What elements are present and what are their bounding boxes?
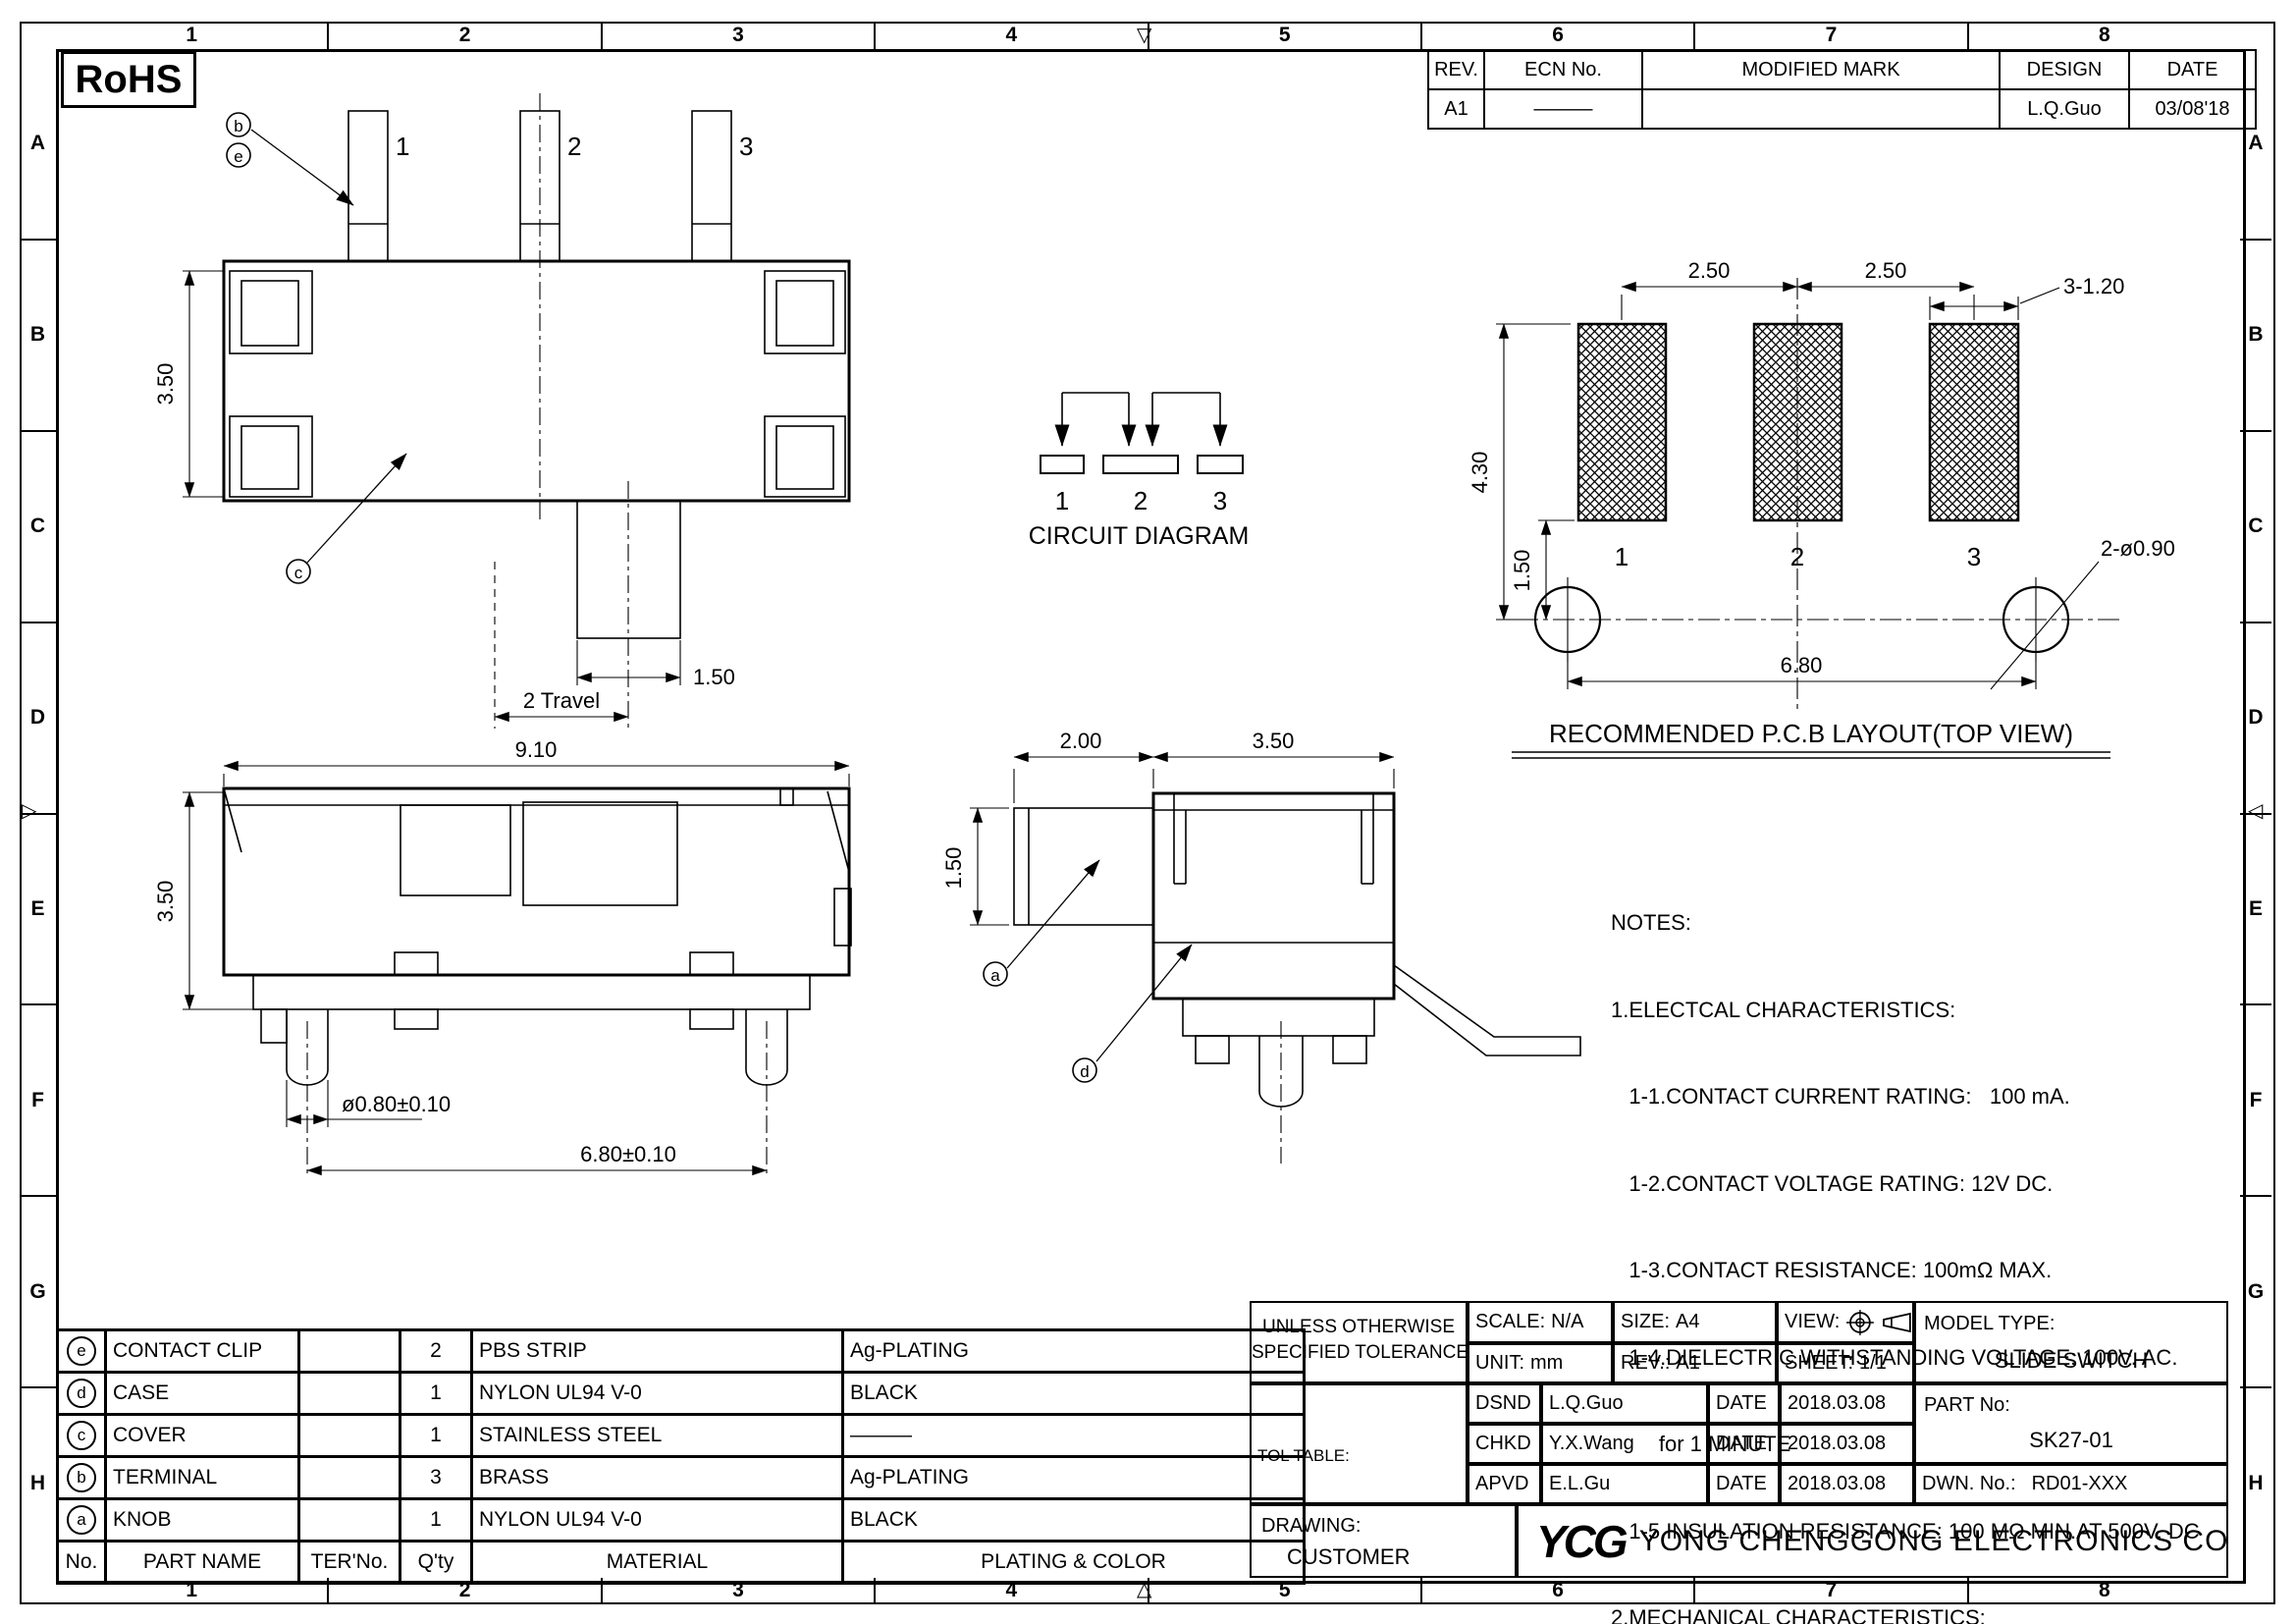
dsnd-role-label: DSND — [1469, 1392, 1537, 1415]
chkd-role: CHKD — [1468, 1424, 1541, 1464]
circuit-pad-2-label: 2 — [1134, 486, 1148, 515]
part-material: NYLON UL94 V-0 — [472, 1373, 843, 1415]
chkd-date-label: DATE — [1708, 1424, 1780, 1464]
parts-row: a KNOB 1 NYLON UL94 V-0 BLACK — [58, 1499, 1305, 1542]
dwn-no-value: RD01-XXX — [2032, 1473, 2128, 1495]
part-material: NYLON UL94 V-0 — [472, 1499, 843, 1542]
circuit-pad-1-label: 1 — [1055, 486, 1069, 515]
parts-row: c COVER 1 STAINLESS STEEL ——— — [58, 1415, 1305, 1457]
dim-side-knob-width: 2.00 — [1014, 729, 1153, 803]
cover-window-left — [400, 805, 510, 895]
tolerance-heading: UNLESS OTHERWISE SPECIFIED TOLERANCES — [1250, 1301, 1468, 1383]
parts-header-qty: Q'ty — [400, 1542, 472, 1584]
part-ter-no — [299, 1415, 400, 1457]
chkd-name: Y.X.Wang — [1541, 1424, 1708, 1464]
notes-title: NOTES: — [1611, 908, 2200, 938]
chkd-date-value: 2018.03.08 — [1782, 1433, 1892, 1455]
size-cell: SIZE: A4 — [1613, 1301, 1777, 1343]
dim-body-width-text: 9.10 — [515, 737, 558, 762]
part-ter-no — [299, 1499, 400, 1542]
projection-symbol-cone-icon — [1881, 1313, 1912, 1332]
part-material: PBS STRIP — [472, 1330, 843, 1373]
knob-profile — [1014, 808, 1153, 925]
dim-pcb-pitch-b-text: 2.50 — [1865, 258, 1907, 283]
part-ter-no — [299, 1330, 400, 1373]
pcb-layout-caption: RECOMMENDED P.C.B LAYOUT(TOP VIEW) — [1549, 719, 2073, 748]
part-no-value: SK27-01 — [1924, 1423, 2218, 1458]
switch-body-outline — [224, 261, 849, 501]
parts-header-part: PART NAME — [106, 1542, 299, 1584]
pcb-pad-3 — [1930, 324, 2018, 520]
model-type-cell: MODEL TYPE: SLIDE SWITCH — [1914, 1301, 2228, 1383]
tolerance-table: TOL TABLE: X. : ±0.38 X.° :±3° X.X : ±0.… — [1250, 1383, 1468, 1504]
dim-pcb-hole-diameter: 2-ø0.90 — [1991, 536, 2175, 689]
part-material: STAINLESS STEEL — [472, 1415, 843, 1457]
dim-pcb-hole-offset-text: 1.50 — [1510, 550, 1534, 592]
circuit-diagram: 1 2 3 CIRCUIT DIAGRAM — [1029, 393, 1250, 550]
size-label: SIZE: — [1615, 1311, 1676, 1333]
part-qty: 1 — [400, 1499, 472, 1542]
part-material: BRASS — [472, 1457, 843, 1499]
parts-row: d CASE 1 NYLON UL94 V-0 BLACK — [58, 1373, 1305, 1415]
part-plating: BLACK — [843, 1499, 1305, 1542]
dim-knob-width-text: 1.50 — [693, 665, 735, 689]
part-name: COVER — [106, 1415, 299, 1457]
dim-knob-width: 1.50 — [577, 640, 735, 689]
dim-front-height: 3.50 — [153, 792, 253, 1009]
apvd-date: 2018.03.08 — [1780, 1464, 1914, 1504]
dim-pcb-hole-offset: 1.50 — [1510, 520, 1575, 620]
terminal-1 — [348, 111, 388, 261]
dim-pcb-hole-span-text: 6.80 — [1781, 653, 1823, 677]
balloon-b-label: b — [234, 117, 242, 135]
part-balloon: b — [58, 1457, 106, 1499]
part-balloon-letter: b — [67, 1463, 96, 1492]
balloon-c: c — [287, 560, 310, 583]
part-qty: 1 — [400, 1415, 472, 1457]
note-line: 1-2.CONTACT VOLTAGE RATING: 12V DC. — [1611, 1169, 2200, 1199]
circuit-pad-3-label: 3 — [1213, 486, 1227, 515]
dim-pin-diameter: ø0.80±0.10 — [287, 1080, 451, 1127]
pcb-pad-1 — [1578, 324, 1666, 520]
part-plating: ——— — [843, 1415, 1305, 1457]
contact-clip-details — [230, 271, 845, 497]
parts-table: e CONTACT CLIP 2 PBS STRIP Ag-PLATING d … — [56, 1328, 1306, 1585]
circuit-pad-1 — [1041, 456, 1084, 473]
sheet-label: SHEET: — [1779, 1352, 1859, 1375]
dim-body-width: 9.10 — [224, 737, 849, 786]
dim-pin-span-text: 6.80±0.10 — [580, 1142, 676, 1166]
terminal-1-label: 1 — [396, 132, 409, 161]
chkd-role-label: CHKD — [1469, 1433, 1537, 1455]
terminal-2-label: 2 — [567, 132, 581, 161]
balloon-e-label: e — [234, 147, 242, 166]
dim-pin-span: 6.80±0.10 — [307, 1142, 767, 1170]
dim-pcb-pad-height-text: 4.30 — [1468, 452, 1492, 494]
part-balloon: c — [58, 1415, 106, 1457]
side-body-outline — [1153, 793, 1394, 999]
balloon-a-label: a — [990, 966, 1000, 985]
rev-value: A1 — [1676, 1352, 1699, 1375]
model-type-value: SLIDE SWITCH — [1924, 1342, 2218, 1380]
note-line: 1-3.CONTACT RESISTANCE: 100mΩ MAX. — [1611, 1256, 2200, 1285]
dim-top-height-text: 3.50 — [153, 363, 178, 406]
terminal-3 — [692, 111, 731, 261]
apvd-name: E.L.Gu — [1541, 1464, 1708, 1504]
scale-value: N/A — [1551, 1311, 1583, 1333]
parts-header-row: No. PART NAME TER'No. Q'ty MATERIAL PLAT… — [58, 1542, 1305, 1584]
dsnd-date: 2018.03.08 — [1780, 1383, 1914, 1424]
parts-header-no: No. — [58, 1542, 106, 1584]
drawing-label: DRAWING: — [1261, 1510, 1505, 1542]
unit-value: mm — [1530, 1352, 1563, 1375]
side-base — [1183, 999, 1374, 1036]
sheet-cell: SHEET: 1/1 — [1777, 1343, 1914, 1383]
dim-side-body-width-text: 3.50 — [1253, 729, 1295, 753]
part-plating: Ag-PLATING — [843, 1330, 1305, 1373]
company-logo: YCG — [1536, 1515, 1626, 1568]
circuit-pad-2 — [1103, 456, 1178, 473]
part-plating: Ag-PLATING — [843, 1457, 1305, 1499]
part-name: TERMINAL — [106, 1457, 299, 1499]
side-view: 2.00 3.50 1.50 a d — [941, 729, 1580, 1164]
bent-terminal-lead — [1394, 965, 1580, 1056]
dim-pin-diameter-text: ø0.80±0.10 — [342, 1092, 451, 1116]
scale-cell: SCALE: N/A — [1468, 1301, 1613, 1343]
chkd-date-label-text: DATE — [1710, 1433, 1773, 1455]
dim-side-body-width: 3.50 — [1153, 729, 1394, 788]
circuit-pad-3 — [1198, 456, 1243, 473]
balloon-b: b — [227, 113, 250, 136]
part-plating: BLACK — [843, 1373, 1305, 1415]
unit-label: UNIT: — [1469, 1352, 1530, 1375]
rev-label: REV.: — [1615, 1352, 1676, 1375]
balloon-c-label: c — [294, 564, 303, 582]
drawing-customer-cell: DRAWING: CUSTOMER — [1250, 1504, 1517, 1578]
company-cell: YCG YONG CHENGGONG ELECTRONICS CO.,LTD. — [1517, 1504, 2228, 1578]
tolerance-heading-line2: SPECIFIED TOLERANCES — [1252, 1340, 1466, 1366]
apvd-name-value: E.L.Gu — [1543, 1473, 1616, 1495]
circuit-diagram-caption: CIRCUIT DIAGRAM — [1029, 522, 1250, 550]
part-balloon-letter: d — [67, 1379, 96, 1408]
front-view: 9.10 3.50 — [153, 737, 851, 1176]
part-name: CONTACT CLIP — [106, 1330, 299, 1373]
tolerance-table-title: TOL TABLE: — [1257, 1442, 1460, 1469]
title-block: UNLESS OTHERWISE SPECIFIED TOLERANCES SC… — [1250, 1301, 2228, 1578]
unit-cell: UNIT: mm — [1468, 1343, 1613, 1383]
dim-side-knob-height: 1.50 — [941, 808, 1009, 925]
dim-top-height: 3.50 — [153, 271, 224, 497]
apvd-role: APVD — [1468, 1464, 1541, 1504]
pcb-pad-3-label: 3 — [1967, 542, 1981, 571]
company-name: YONG CHENGGONG ELECTRONICS CO.,LTD. — [1639, 1525, 2228, 1558]
part-name: KNOB — [106, 1499, 299, 1542]
parts-row: e CONTACT CLIP 2 PBS STRIP Ag-PLATING — [58, 1330, 1305, 1373]
part-balloon-letter: e — [67, 1336, 96, 1366]
dsnd-name-value: L.Q.Guo — [1543, 1392, 1629, 1415]
part-balloon-letter: c — [67, 1421, 96, 1450]
apvd-role-label: APVD — [1469, 1473, 1534, 1495]
part-balloon: e — [58, 1330, 106, 1373]
tolerance-heading-line1: UNLESS OTHERWISE — [1252, 1315, 1466, 1340]
part-ter-no — [299, 1373, 400, 1415]
rev-cell: REV.: A1 — [1613, 1343, 1777, 1383]
dim-travel: 2 Travel — [495, 562, 628, 729]
part-qty: 1 — [400, 1373, 472, 1415]
drawing-value: CUSTOMER — [1261, 1542, 1505, 1573]
dwn-no-cell: DWN. No.: RD01-XXX — [1914, 1464, 2228, 1504]
note-line: 1-1.CONTACT CURRENT RATING: 100 mA. — [1611, 1082, 2200, 1111]
front-body-outline — [224, 788, 849, 975]
dsnd-name: L.Q.Guo — [1541, 1383, 1708, 1424]
model-type-label: MODEL TYPE: — [1924, 1305, 2218, 1342]
projection-symbol-target-icon — [1845, 1310, 1875, 1335]
view-cell: VIEW: — [1777, 1301, 1914, 1343]
part-ter-no — [299, 1457, 400, 1499]
dsnd-role: DSND — [1468, 1383, 1541, 1424]
parts-row: b TERMINAL 3 BRASS Ag-PLATING — [58, 1457, 1305, 1499]
sheet-value: 1/1 — [1859, 1352, 1887, 1375]
part-qty: 3 — [400, 1457, 472, 1499]
parts-header-material: MATERIAL — [472, 1542, 843, 1584]
dim-pcb-pitch-a-text: 2.50 — [1688, 258, 1731, 283]
dsnd-date-value: 2018.03.08 — [1782, 1392, 1892, 1415]
part-balloon: d — [58, 1373, 106, 1415]
part-no-cell: PART No: SK27-01 — [1914, 1383, 2228, 1464]
dim-pcb-hole-span: 6.80 — [1568, 653, 2036, 689]
dwn-no-label: DWN. No.: — [1916, 1473, 2022, 1495]
parts-header-plating: PLATING & COLOR — [843, 1542, 1305, 1584]
dim-side-knob-width-text: 2.00 — [1060, 729, 1102, 753]
chkd-date: 2018.03.08 — [1780, 1424, 1914, 1464]
dsnd-date-label: DATE — [1708, 1383, 1780, 1424]
balloon-e: e — [227, 143, 250, 167]
pcb-pad-1-label: 1 — [1615, 542, 1629, 571]
dsnd-date-label-text: DATE — [1710, 1392, 1773, 1415]
dim-travel-text: 2 Travel — [523, 688, 600, 713]
chkd-name-value: Y.X.Wang — [1543, 1433, 1640, 1455]
pcb-layout: 1 2 3 2.50 2.50 — [1468, 258, 2175, 758]
base-strip — [253, 975, 810, 1009]
dim-pcb-pad-width-text: 3-1.20 — [2063, 274, 2124, 298]
note-line: 1.ELECTCAL CHARACTERISTICS: — [1611, 996, 2200, 1025]
part-balloon-letter: a — [67, 1505, 96, 1535]
note-line: 2.MECHANICAL CHARACTERISTICS: — [1611, 1603, 2200, 1624]
top-view: 1 2 3 b e c 3.50 — [153, 93, 849, 731]
cover-window-right — [523, 802, 677, 905]
drawing-sheet: 1 2 3 4 5 6 7 8 1 2 3 4 5 6 7 8 A B C D … — [0, 0, 2296, 1624]
apvd-date-value: 2018.03.08 — [1782, 1473, 1892, 1495]
part-name: CASE — [106, 1373, 299, 1415]
scale-label: SCALE: — [1469, 1311, 1551, 1333]
terminal-3-label: 3 — [739, 132, 753, 161]
balloon-a: a — [984, 962, 1007, 986]
part-no-label: PART No: — [1924, 1387, 2218, 1423]
part-balloon: a — [58, 1499, 106, 1542]
dim-side-knob-height-text: 1.50 — [941, 847, 966, 890]
parts-header-ter: TER'No. — [299, 1542, 400, 1584]
dim-pcb-pad-width: 3-1.20 — [1930, 274, 2124, 320]
apvd-date-label-text: DATE — [1710, 1473, 1773, 1495]
apvd-date-label: DATE — [1708, 1464, 1780, 1504]
view-label: VIEW: — [1779, 1311, 1845, 1333]
dim-pcb-hole-diameter-text: 2-ø0.90 — [2101, 536, 2175, 561]
dim-front-height-text: 3.50 — [153, 881, 178, 923]
balloon-d: d — [1073, 1058, 1096, 1082]
balloon-d-label: d — [1080, 1062, 1089, 1081]
size-value: A4 — [1676, 1311, 1699, 1333]
part-qty: 2 — [400, 1330, 472, 1373]
